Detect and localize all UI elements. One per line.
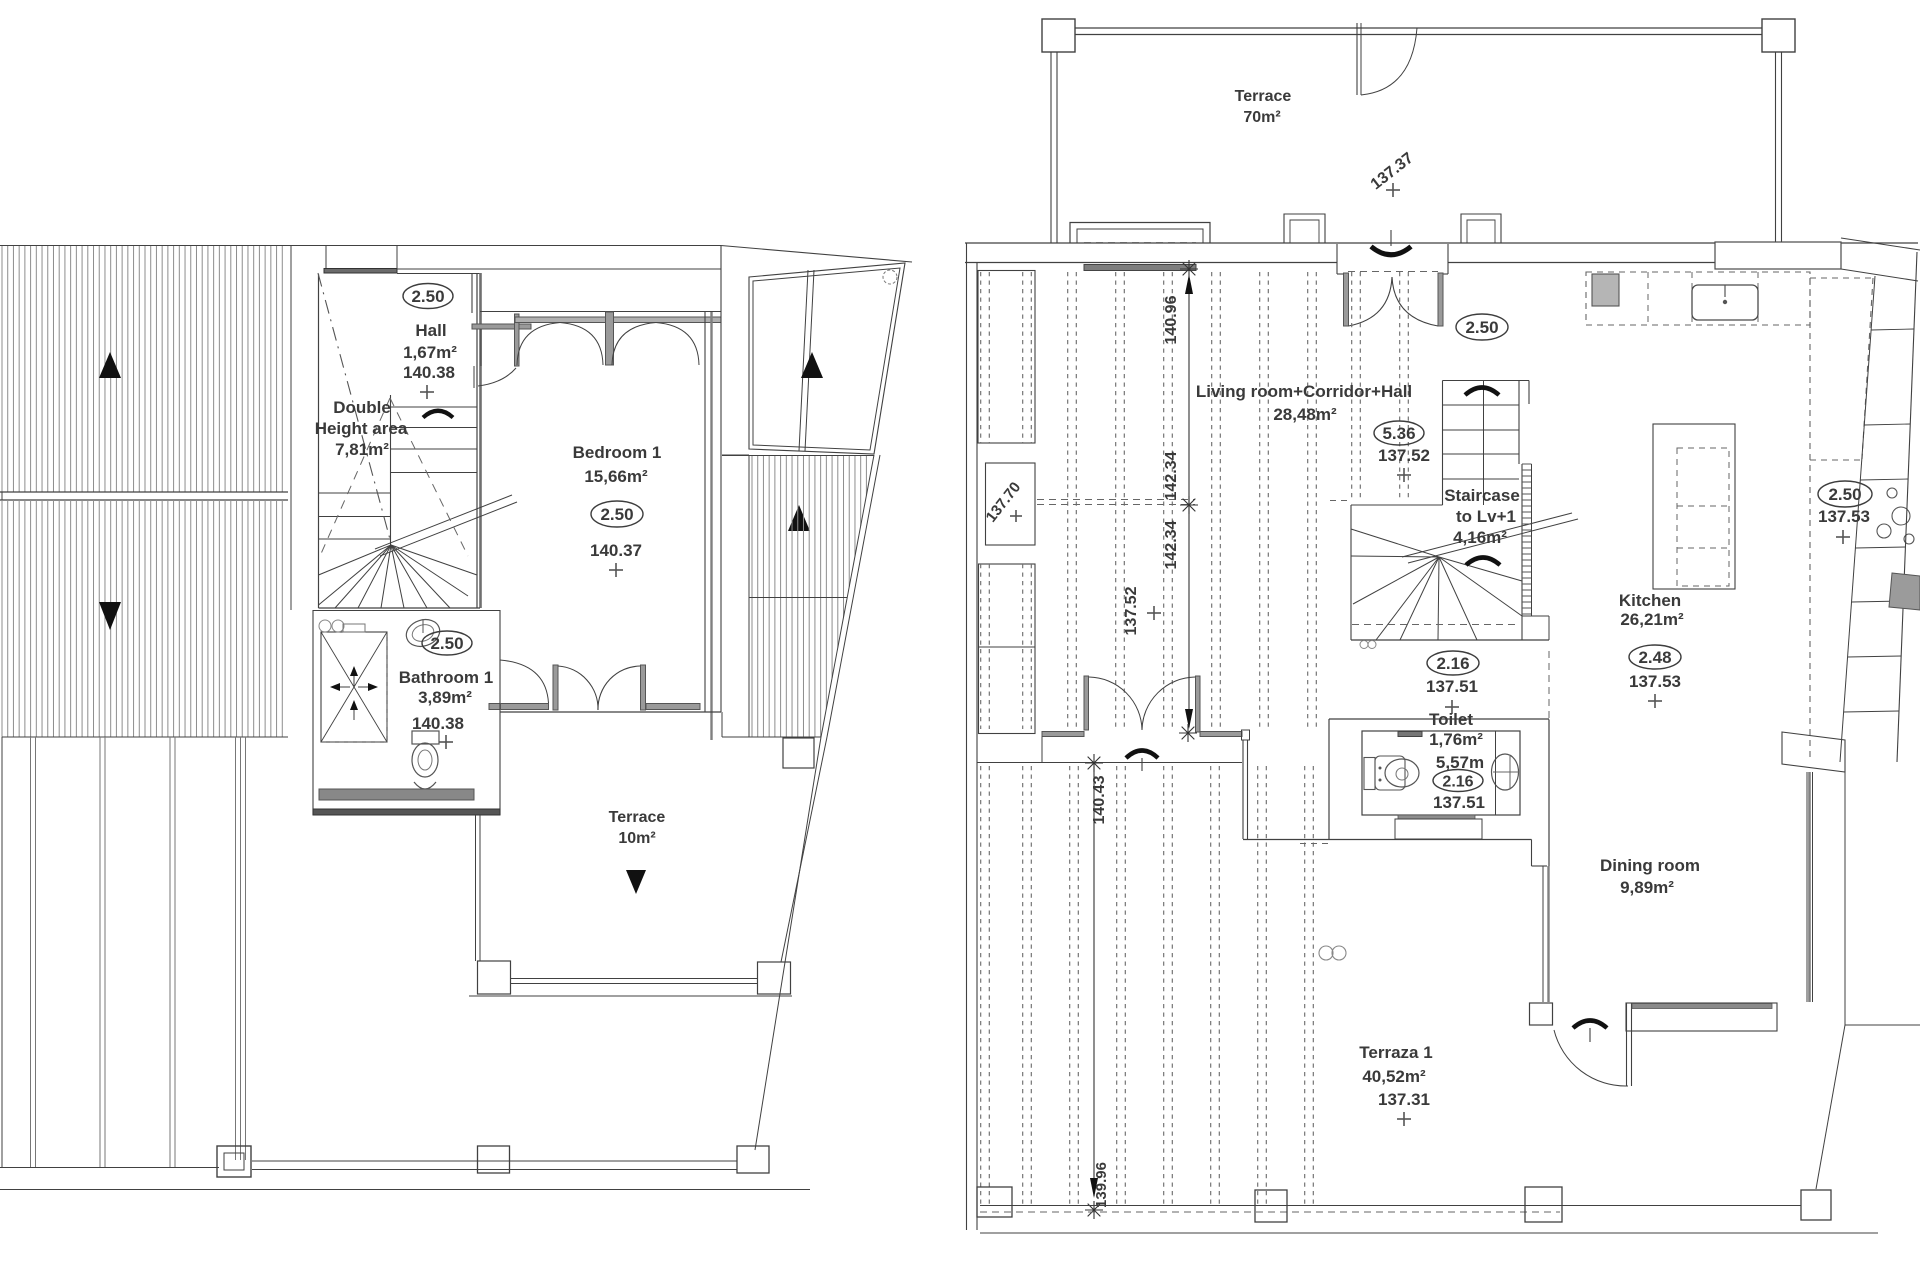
svg-text:2.16: 2.16 <box>1442 774 1473 791</box>
svg-text:Hall: Hall <box>415 321 446 340</box>
svg-text:Height area: Height area <box>315 419 408 438</box>
svg-text:137.52: 137.52 <box>1123 586 1140 635</box>
svg-text:Kitchen: Kitchen <box>1619 591 1681 610</box>
svg-text:Terrace: Terrace <box>1235 88 1292 105</box>
svg-text:Terrace: Terrace <box>609 809 666 826</box>
svg-text:137.51: 137.51 <box>1433 793 1485 812</box>
svg-text:142.34: 142.34 <box>1163 520 1180 569</box>
svg-text:137.53: 137.53 <box>1629 672 1681 691</box>
svg-text:140.38: 140.38 <box>412 714 464 733</box>
svg-text:Living room+Corridor+Hall: Living room+Corridor+Hall <box>1196 382 1412 401</box>
svg-text:2.50: 2.50 <box>1465 318 1498 337</box>
svg-text:1,76m²: 1,76m² <box>1429 730 1483 749</box>
svg-text:Staircase: Staircase <box>1444 486 1520 505</box>
svg-text:140.37: 140.37 <box>590 541 642 560</box>
svg-text:to Lv+1: to Lv+1 <box>1456 507 1516 526</box>
svg-text:10m²: 10m² <box>618 830 655 847</box>
svg-text:2.50: 2.50 <box>430 634 463 653</box>
svg-text:140.43: 140.43 <box>1091 775 1108 824</box>
svg-text:139.96: 139.96 <box>1093 1162 1110 1208</box>
svg-text:9,89m²: 9,89m² <box>1620 878 1674 897</box>
svg-text:140.38: 140.38 <box>403 363 455 382</box>
svg-text:70m²: 70m² <box>1243 109 1280 126</box>
svg-text:137.53: 137.53 <box>1818 507 1870 526</box>
svg-text:137.52: 137.52 <box>1378 446 1430 465</box>
svg-text:5.36: 5.36 <box>1382 424 1415 443</box>
svg-text:2.50: 2.50 <box>600 505 633 524</box>
svg-text:4,16m²: 4,16m² <box>1453 528 1507 547</box>
svg-text:Terraza 1: Terraza 1 <box>1359 1043 1432 1062</box>
svg-text:40,52m²: 40,52m² <box>1362 1067 1426 1086</box>
svg-text:2.50: 2.50 <box>1828 485 1861 504</box>
svg-text:Bedroom 1: Bedroom 1 <box>573 443 662 462</box>
svg-text:2.16: 2.16 <box>1436 654 1469 673</box>
svg-text:Dining room: Dining room <box>1600 856 1700 875</box>
svg-text:140.96: 140.96 <box>1163 295 1180 344</box>
svg-text:Bathroom 1: Bathroom 1 <box>399 668 493 687</box>
svg-text:1,67m²: 1,67m² <box>403 343 457 362</box>
svg-text:26,21m²: 26,21m² <box>1620 610 1684 629</box>
svg-text:2.50: 2.50 <box>411 287 444 306</box>
svg-text:137.51: 137.51 <box>1426 677 1478 696</box>
svg-text:3,89m²: 3,89m² <box>418 688 472 707</box>
svg-text:28,48m²: 28,48m² <box>1273 405 1337 424</box>
svg-text:2.48: 2.48 <box>1638 648 1671 667</box>
svg-text:15,66m²: 15,66m² <box>584 467 648 486</box>
svg-text:Toilet: Toilet <box>1429 710 1473 729</box>
svg-text:7,81m²: 7,81m² <box>335 440 389 459</box>
svg-text:Double: Double <box>333 398 391 417</box>
svg-text:142.34: 142.34 <box>1163 451 1180 500</box>
svg-text:137.31: 137.31 <box>1378 1090 1430 1109</box>
